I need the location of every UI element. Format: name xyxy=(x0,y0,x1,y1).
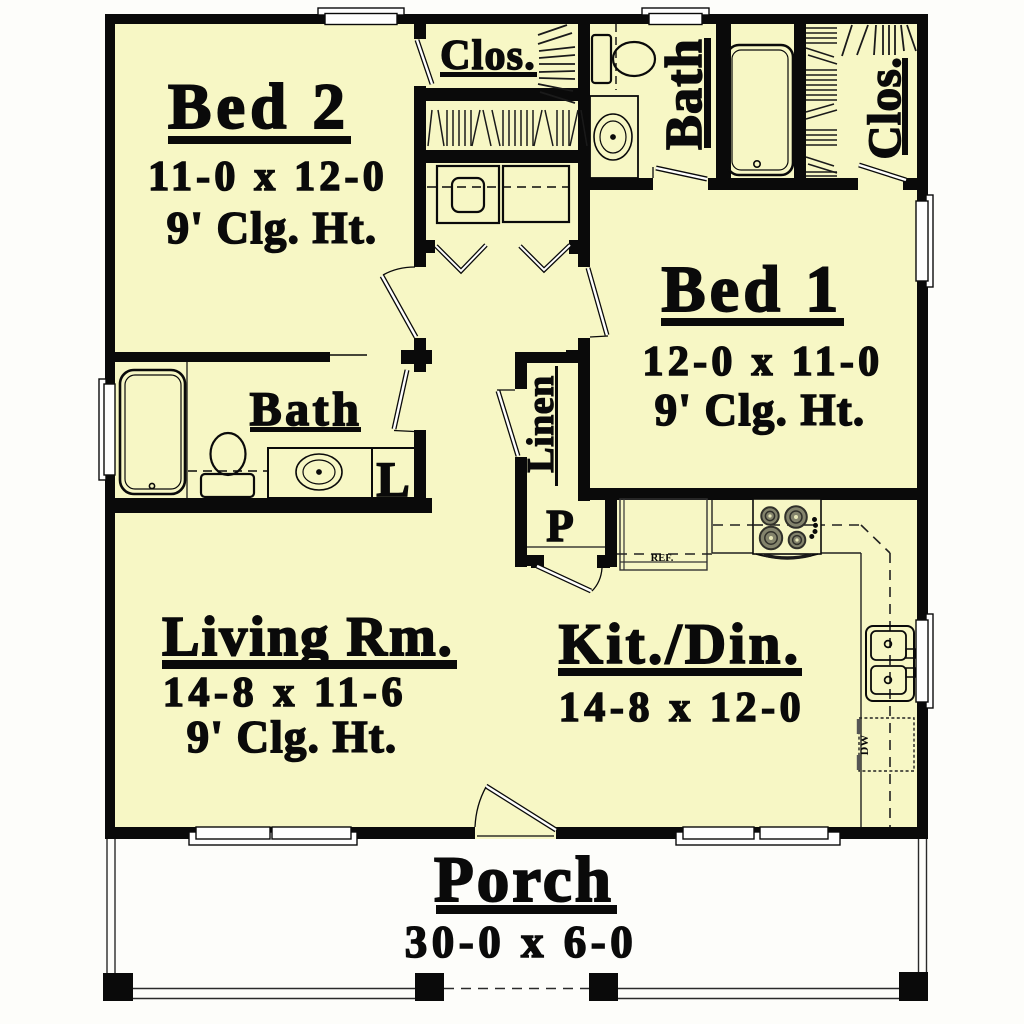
svg-text:Bed 1: Bed 1 xyxy=(661,253,842,326)
svg-text:Living Rm.: Living Rm. xyxy=(162,606,454,668)
svg-text:L: L xyxy=(376,451,409,507)
svg-text:14-8 x 11-6: 14-8 x 11-6 xyxy=(163,670,407,716)
svg-text:11-0 x 12-0: 11-0 x 12-0 xyxy=(148,154,388,200)
svg-text:12-0 x 11-0: 12-0 x 11-0 xyxy=(643,339,884,385)
svg-text:Bed 2: Bed 2 xyxy=(168,71,350,143)
svg-text:P: P xyxy=(546,501,574,551)
svg-text:9' Clg. Ht.: 9' Clg. Ht. xyxy=(167,203,378,253)
svg-text:REF.: REF. xyxy=(651,553,674,564)
svg-text:14-8 x 12-0: 14-8 x 12-0 xyxy=(559,685,806,731)
svg-text:9' Clg. Ht.: 9' Clg. Ht. xyxy=(655,385,866,435)
svg-text:Kit./Din.: Kit./Din. xyxy=(559,613,802,676)
svg-text:30-0 x 6-0: 30-0 x 6-0 xyxy=(405,917,637,967)
svg-text:DW: DW xyxy=(857,735,871,756)
svg-text:9' Clg. Ht.: 9' Clg. Ht. xyxy=(187,712,398,762)
